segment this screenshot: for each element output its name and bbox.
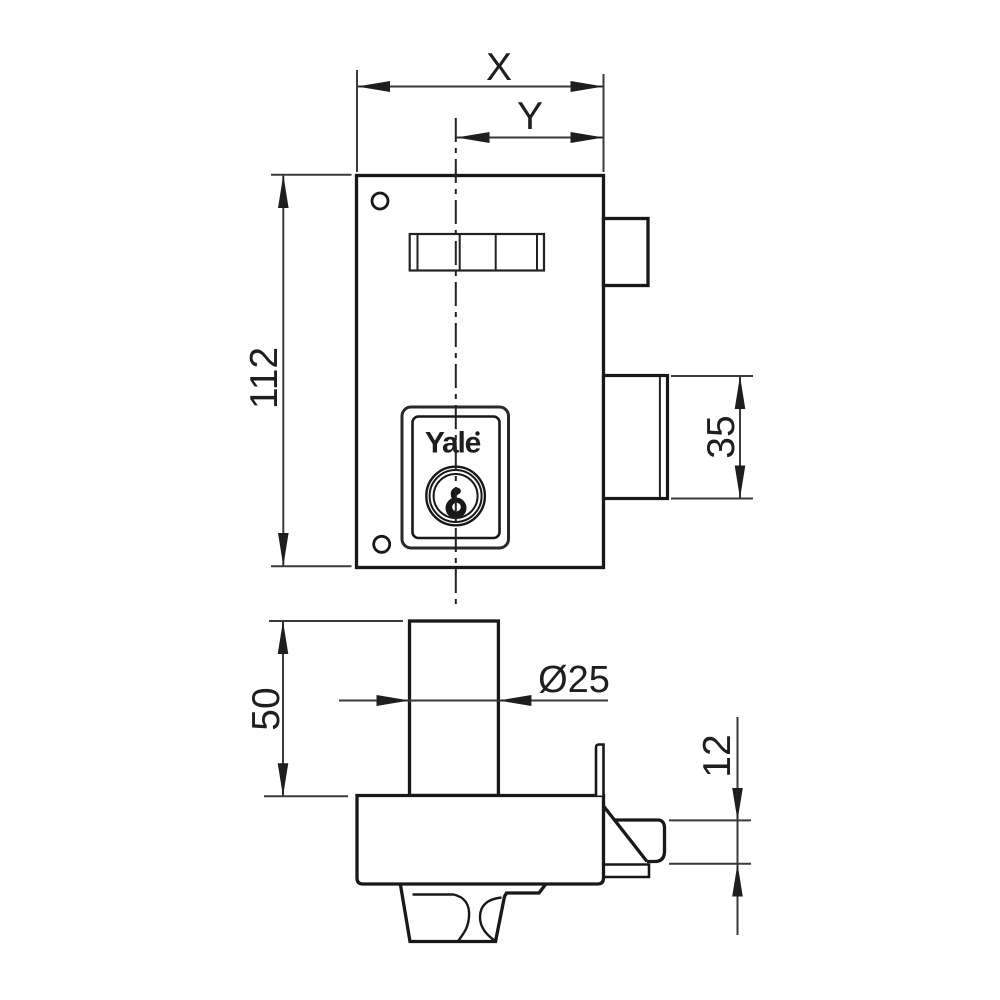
svg-text:50: 50 <box>245 687 288 730</box>
svg-text:35: 35 <box>700 415 743 458</box>
svg-text:Yale: Yale <box>425 427 481 460</box>
svg-text:12: 12 <box>696 734 739 777</box>
svg-text:X: X <box>486 46 512 89</box>
svg-text:Y: Y <box>517 95 543 138</box>
svg-text:Ø25: Ø25 <box>538 659 610 701</box>
svg-text:112: 112 <box>243 347 286 409</box>
